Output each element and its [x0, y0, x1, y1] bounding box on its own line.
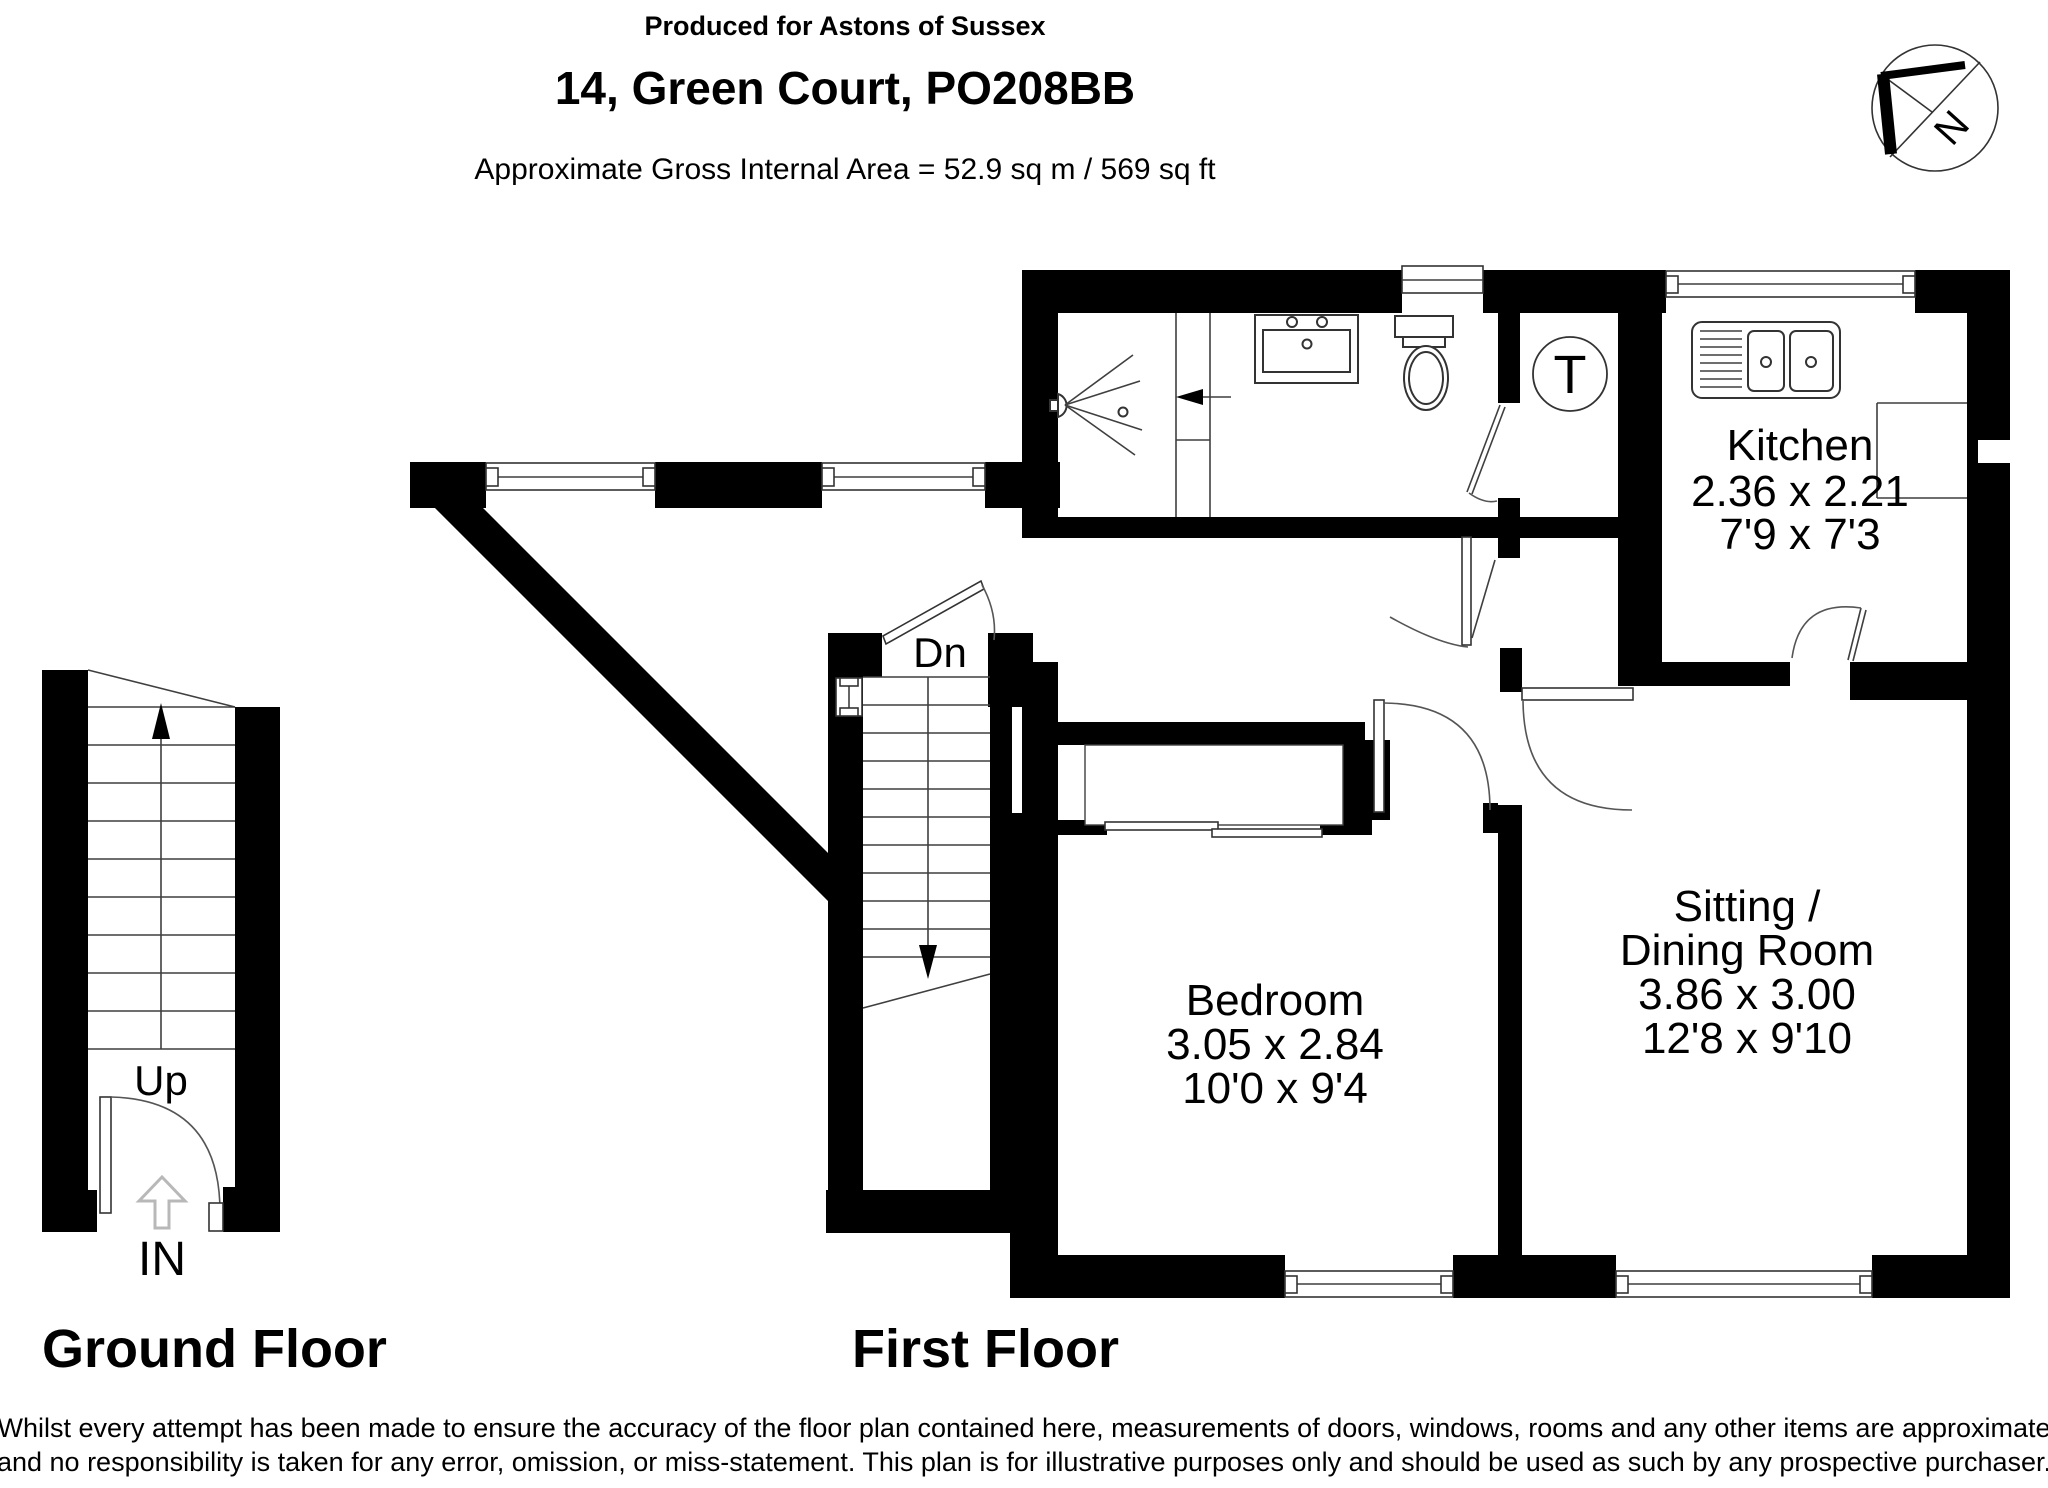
sitting-name-1: Sitting /: [1674, 882, 1822, 931]
tank-label: T: [1554, 345, 1587, 405]
stair-window: [836, 678, 862, 716]
bedroom-window: [1285, 1255, 1453, 1298]
bathroom-fixtures: [1050, 313, 1453, 517]
produced-for-text: Produced for Astons of Sussex: [644, 11, 1045, 41]
disclaimer-line-2: and no responsibility is taken for any e…: [0, 1447, 2048, 1477]
first-floor-stairs: Dn: [863, 581, 995, 1008]
landing-window-1: [486, 462, 655, 508]
sitting-name-2: Dining Room: [1620, 926, 1874, 975]
arrow-left-icon: [1176, 389, 1231, 405]
kitchen-name: Kitchen: [1727, 421, 1874, 470]
kitchen-imperial: 7'9 x 7'3: [1719, 510, 1880, 559]
page-title: 14, Green Court, PO208BB: [555, 62, 1135, 114]
kitchen-door: [1792, 607, 1866, 661]
disclaimer: Whilst every attempt has been made to en…: [0, 1413, 2048, 1477]
first-floor-title: First Floor: [852, 1319, 1119, 1379]
bedroom-imperial: 10'0 x 9'4: [1182, 1064, 1368, 1113]
compass-icon: N: [1872, 45, 1998, 171]
kitchen-sink-icon: [1692, 322, 1840, 398]
down-arrow-icon: [919, 945, 937, 979]
bedroom-door: [1374, 700, 1490, 812]
bedroom-name: Bedroom: [1186, 976, 1365, 1025]
ground-stairs: [88, 703, 235, 1049]
shower-icon: [1050, 355, 1142, 455]
header: Produced for Astons of Sussex 14, Green …: [474, 11, 1216, 186]
basin-icon: [1255, 315, 1358, 383]
wardrobe: [1085, 745, 1343, 837]
bathroom-window: [1402, 266, 1483, 313]
sitting-metric: 3.86 x 3.00: [1638, 970, 1856, 1019]
gross-area-text: Approximate Gross Internal Area = 52.9 s…: [474, 153, 1216, 186]
disclaimer-line-1: Whilst every attempt has been made to en…: [0, 1413, 2048, 1443]
bathroom-door: [1467, 405, 1505, 502]
up-arrow-icon: [152, 703, 170, 739]
dn-label: Dn: [913, 629, 967, 676]
up-label: Up: [134, 1057, 188, 1104]
landing-window-2: [822, 462, 985, 508]
bedroom-metric: 3.05 x 2.84: [1166, 1020, 1384, 1069]
ground-floor-plan: Up IN Ground Floor: [42, 670, 387, 1379]
entry-door: [100, 1097, 223, 1231]
kitchen-window: [1666, 270, 1915, 313]
in-arrow-icon: [139, 1177, 185, 1228]
ground-floor-title: Ground Floor: [42, 1319, 387, 1379]
in-label: IN: [138, 1233, 186, 1286]
floorplan-page: Produced for Astons of Sussex 14, Green …: [0, 0, 2048, 1488]
sitting-window: [1616, 1255, 1872, 1298]
cupboard-door: [1390, 537, 1495, 647]
sitting-imperial: 12'8 x 9'10: [1642, 1014, 1852, 1063]
tank-cupboard: T: [1533, 337, 1607, 411]
toilet-icon: [1395, 316, 1453, 410]
sitting-door: [1522, 688, 1633, 810]
kitchen-metric: 2.36 x 2.21: [1691, 467, 1909, 516]
floorplan-canvas: Produced for Astons of Sussex 14, Green …: [0, 0, 2048, 1488]
